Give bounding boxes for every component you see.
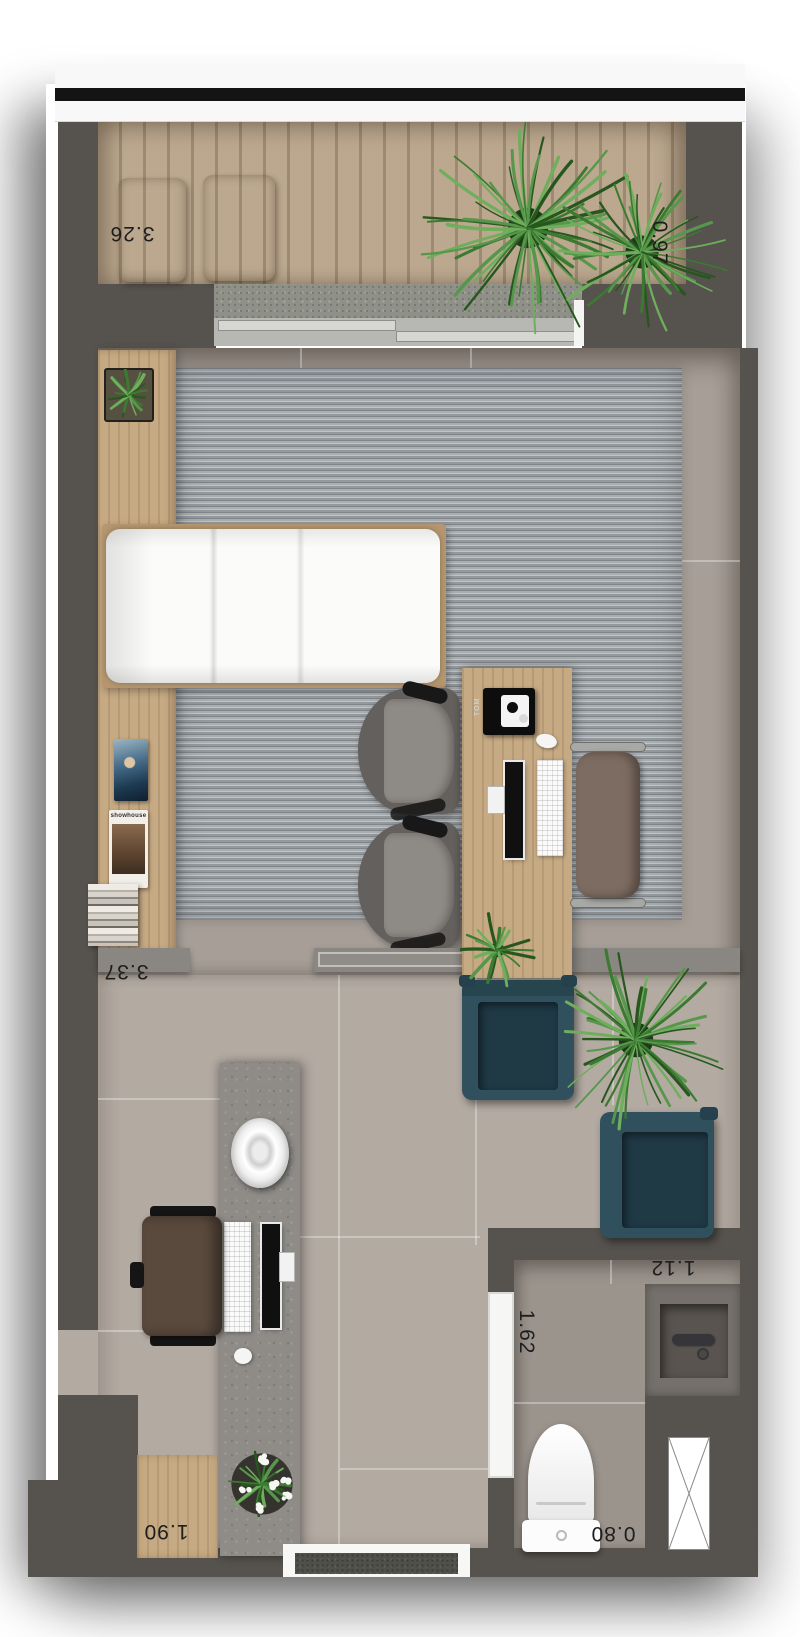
armchair-nub [459, 975, 475, 987]
desk-camera-button [519, 714, 528, 723]
monitor-stand [279, 1252, 295, 1282]
tile-joint [300, 348, 302, 370]
monitor [262, 1224, 280, 1328]
monitor-stand [487, 786, 505, 814]
armchair-seat [478, 1002, 558, 1090]
dimension-label-hall-width: 1.62 [511, 1300, 541, 1364]
magazine-photo [112, 824, 145, 874]
wood-stump-mat [203, 175, 275, 281]
wall-bottom-right-segment [470, 1548, 758, 1577]
tile-joint [470, 348, 472, 370]
tile-joint [682, 560, 740, 562]
window-end-cap [574, 300, 584, 346]
dimension-label-bathroom-width: 1.12 [641, 1252, 705, 1282]
tile-joint [514, 1402, 645, 1404]
task-chair-lever [130, 1262, 144, 1288]
office-chair-seat [576, 752, 640, 898]
task-chair [130, 1206, 222, 1346]
lounge-chair-cushion [384, 699, 454, 803]
dimension-label-balcony-width: 3.26 [96, 218, 168, 248]
magazine [114, 739, 148, 801]
lounge-chair [358, 688, 460, 814]
armchair-nub [561, 975, 577, 987]
bathroom-vanity [645, 1284, 740, 1396]
armchair-seat [622, 1132, 708, 1228]
armchair-teal [600, 1112, 714, 1238]
office-chair [566, 742, 650, 908]
wall-bottom-left-foot [28, 1480, 58, 1577]
tile-joint [610, 1260, 612, 1284]
keyboard [537, 760, 563, 856]
balcony-railing-stripe [55, 88, 745, 101]
task-chair-seat [142, 1216, 222, 1336]
vessel-sink [231, 1118, 289, 1188]
dimension-label-bathroom-depth: 0.80 [581, 1518, 645, 1548]
wall-left [58, 348, 98, 1395]
office-chair-armrest [570, 898, 646, 908]
dimension-label-entry-width: 1.90 [134, 1516, 198, 1546]
wall-bathroom-left-upper [488, 1260, 514, 1292]
sliding-window-panel [396, 331, 576, 342]
wall-niche-floor [58, 1330, 98, 1395]
wall-bathroom-left-lower [488, 1478, 514, 1548]
magazine: showhouse [109, 810, 148, 888]
tile-joint [612, 975, 614, 1105]
armchair-back-bar [462, 980, 574, 996]
floor-plan: showhouse TOM [0, 0, 800, 1637]
toilet-flush-button [556, 1530, 567, 1541]
balcony-deck [98, 112, 686, 284]
lounge-chair-cushion [384, 833, 454, 937]
wall-balcony-right [686, 100, 742, 348]
lounge-chair [358, 822, 460, 948]
faucet-handle [697, 1348, 709, 1360]
shaft-box [668, 1437, 710, 1550]
desk-camera-label: TOM [474, 706, 504, 716]
wall-balcony-bottom-right [582, 282, 686, 348]
desk-camera-lens [507, 702, 518, 713]
dimension-label-room-width: 3.37 [94, 956, 158, 986]
daybed-mattress [106, 529, 440, 683]
book-stack [88, 884, 138, 946]
tile-joint [340, 1468, 488, 1470]
tile-joint [300, 1236, 480, 1238]
armchair-teal [462, 980, 574, 1100]
wall-balcony-bottom-left [98, 282, 216, 348]
doormat [295, 1553, 458, 1574]
toilet-bowl [528, 1424, 594, 1526]
office-chair-armrest [570, 742, 646, 752]
sliding-window-panel [218, 320, 396, 331]
wall-left-top [58, 100, 98, 282]
dimension-label-balcony-depth: 0.97 [644, 212, 674, 274]
wall-right [740, 348, 758, 1577]
mouse [234, 1348, 252, 1364]
faucet-icon [672, 1334, 714, 1345]
desk-camera: TOM [483, 688, 535, 735]
magazine-title: showhouse [109, 813, 148, 819]
window-sill [214, 284, 582, 320]
shaft-x-icon [669, 1438, 709, 1549]
toilet-seat-line [536, 1502, 586, 1505]
tile-joint [338, 975, 340, 1548]
monitor [505, 762, 523, 858]
keyboard [224, 1222, 251, 1332]
tile-joint [98, 1098, 220, 1100]
armchair-nub [700, 1107, 718, 1120]
planter-pot [104, 368, 154, 422]
